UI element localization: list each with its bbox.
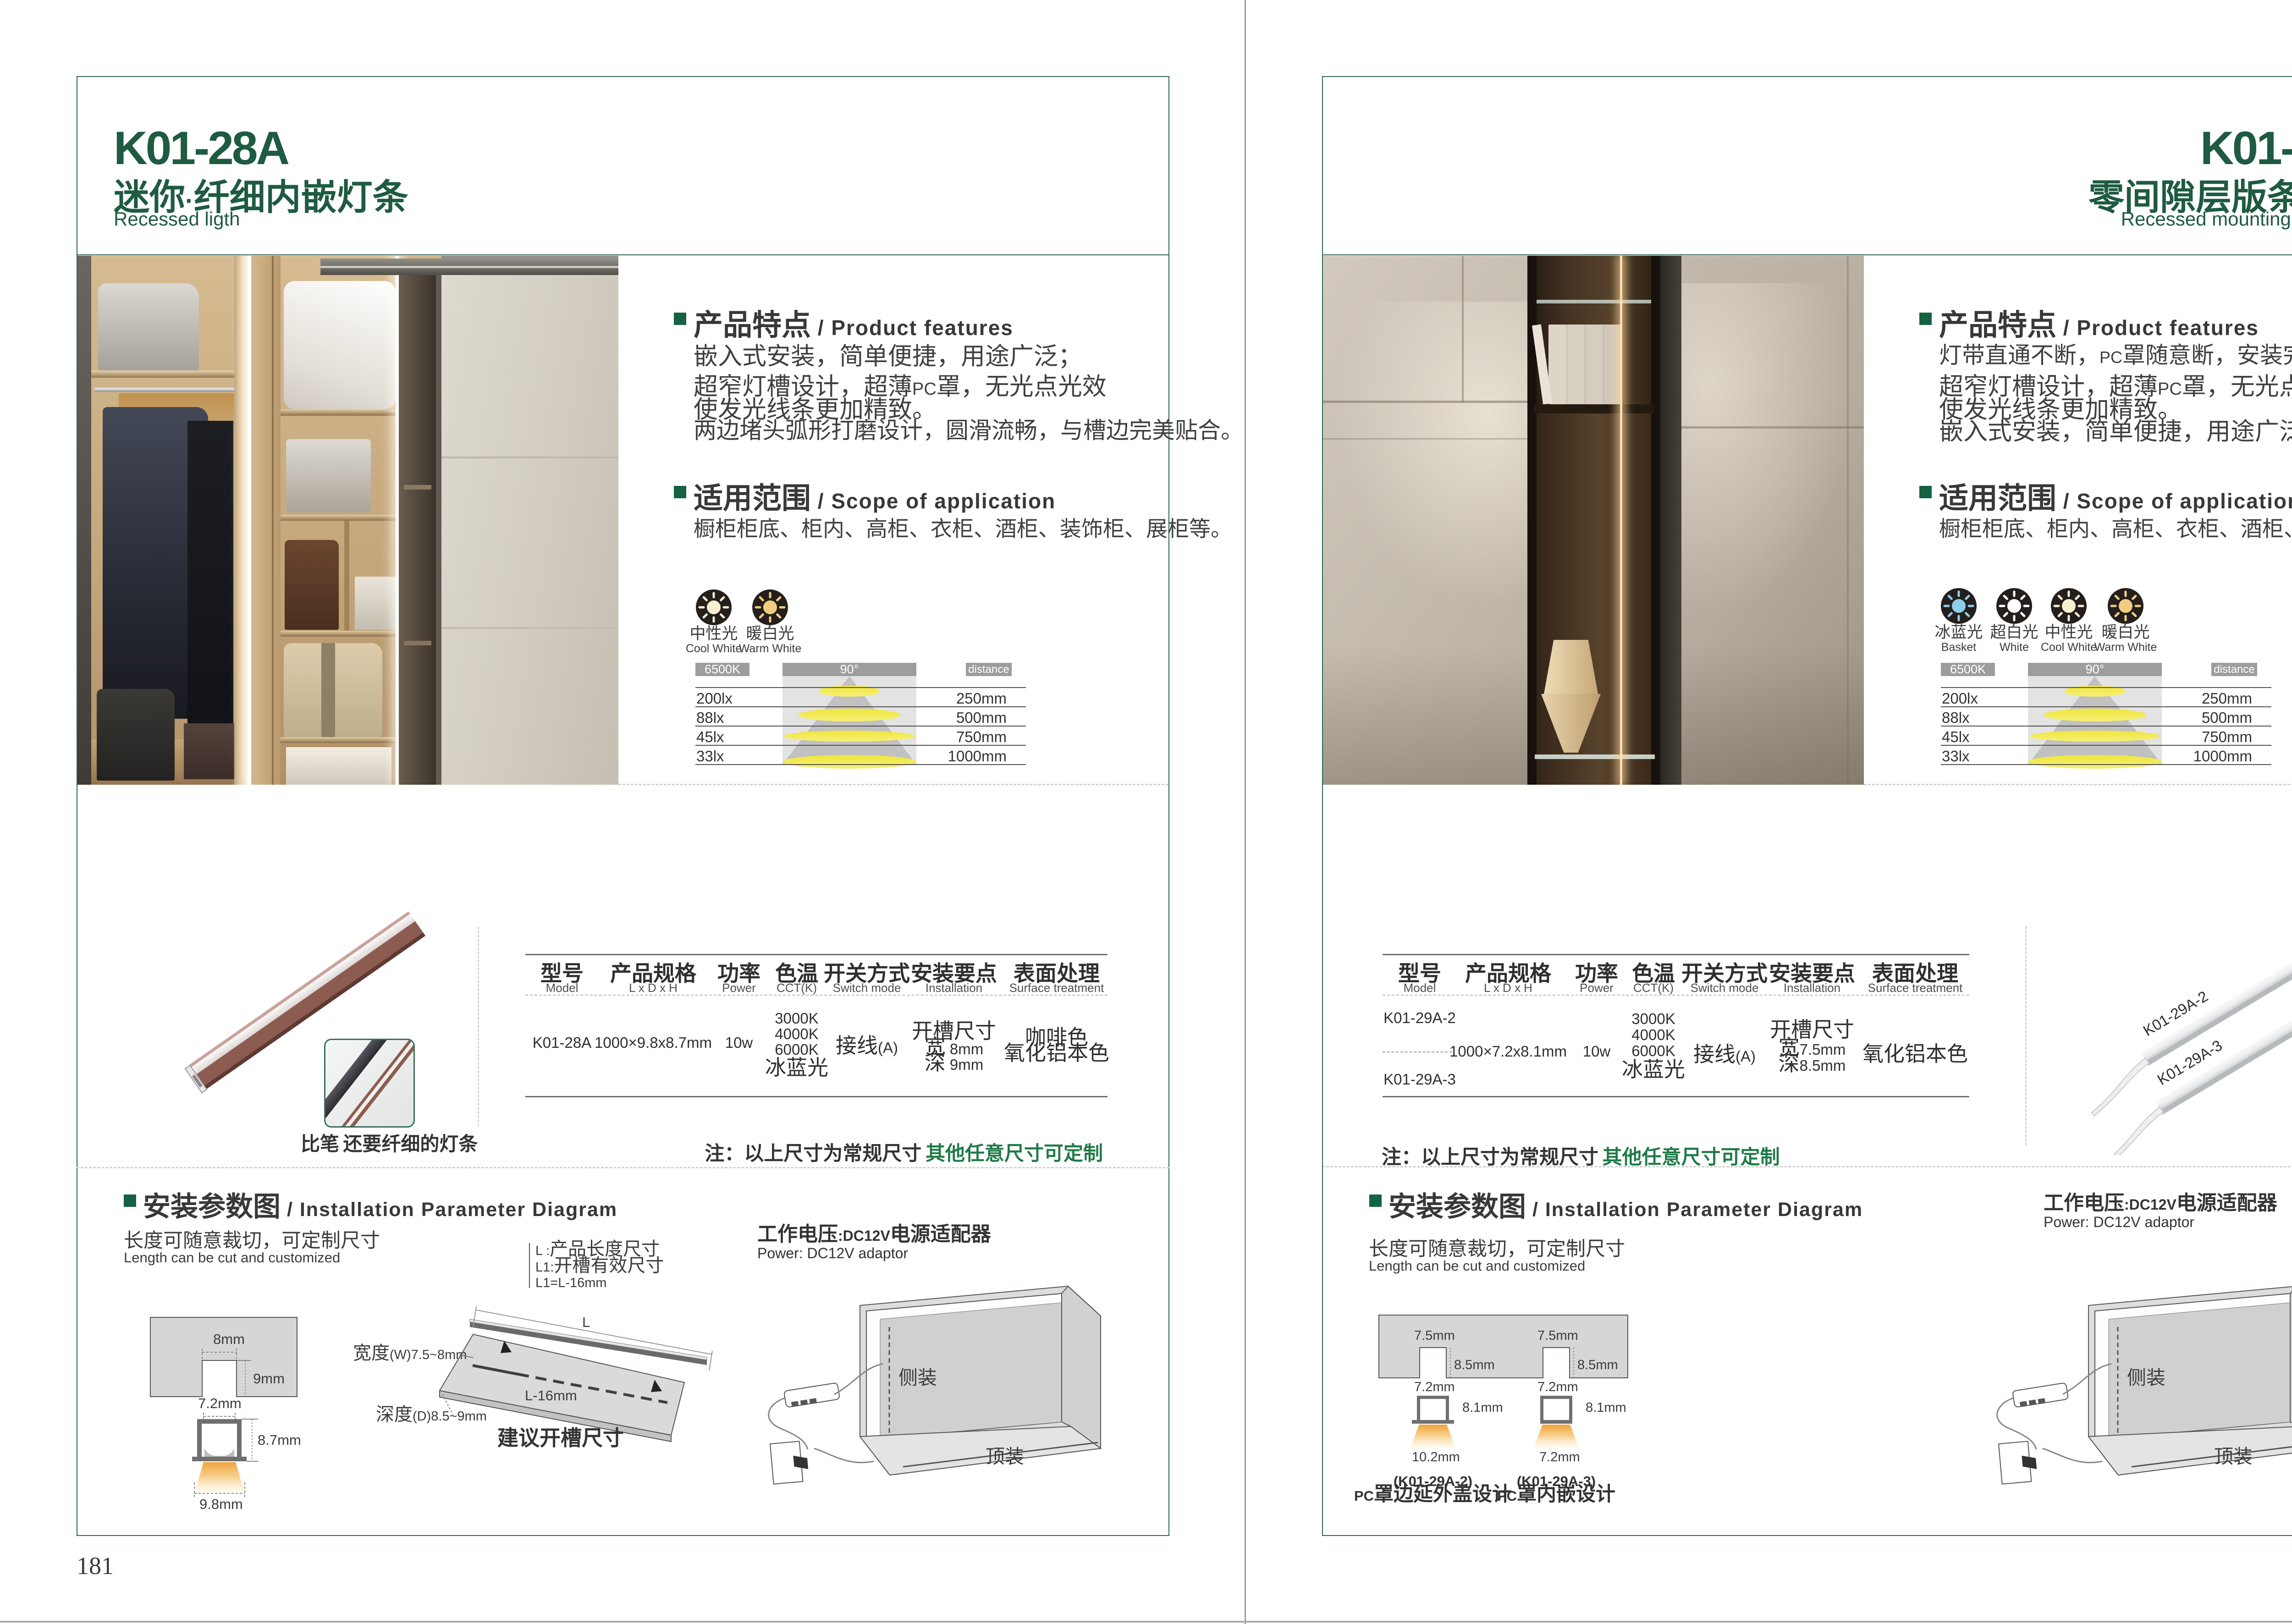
svg-text:1000mm: 1000mm bbox=[948, 748, 1007, 765]
svg-text:顶装: 顶装 bbox=[986, 1446, 1024, 1467]
svg-text:750mm: 750mm bbox=[956, 728, 1007, 745]
svg-text:200lx: 200lx bbox=[696, 690, 733, 707]
svg-text:88lx: 88lx bbox=[696, 709, 724, 726]
svg-text:深度(D)8.5~9mm: 深度(D)8.5~9mm bbox=[376, 1404, 487, 1425]
svg-text:L1:开槽有效尺寸: L1:开槽有效尺寸 bbox=[535, 1255, 664, 1276]
svg-text:33lx: 33lx bbox=[696, 748, 724, 765]
svg-text:6500K: 6500K bbox=[705, 662, 740, 676]
svg-text:侧装: 侧装 bbox=[898, 1367, 937, 1388]
svg-text:8mm: 8mm bbox=[213, 1331, 245, 1347]
svg-text:L: L bbox=[582, 1314, 590, 1330]
svg-text:8.7mm: 8.7mm bbox=[258, 1432, 301, 1448]
svg-text:建议开槽尺寸: 建议开槽尺寸 bbox=[497, 1426, 624, 1450]
svg-text:250mm: 250mm bbox=[956, 690, 1007, 707]
svg-text:7.2mm: 7.2mm bbox=[198, 1395, 242, 1411]
svg-text:500mm: 500mm bbox=[956, 709, 1007, 726]
svg-text:9mm: 9mm bbox=[253, 1371, 285, 1387]
svg-text:distance: distance bbox=[968, 663, 1009, 676]
svg-text:宽度(W)7.5~8mm: 宽度(W)7.5~8mm bbox=[353, 1343, 467, 1363]
svg-text:L1=L-16mm: L1=L-16mm bbox=[535, 1276, 607, 1290]
svg-text:90°: 90° bbox=[840, 662, 859, 676]
svg-text:45lx: 45lx bbox=[696, 728, 724, 745]
svg-text:L-16mm: L-16mm bbox=[525, 1387, 577, 1404]
svg-text:9.8mm: 9.8mm bbox=[199, 1496, 243, 1512]
